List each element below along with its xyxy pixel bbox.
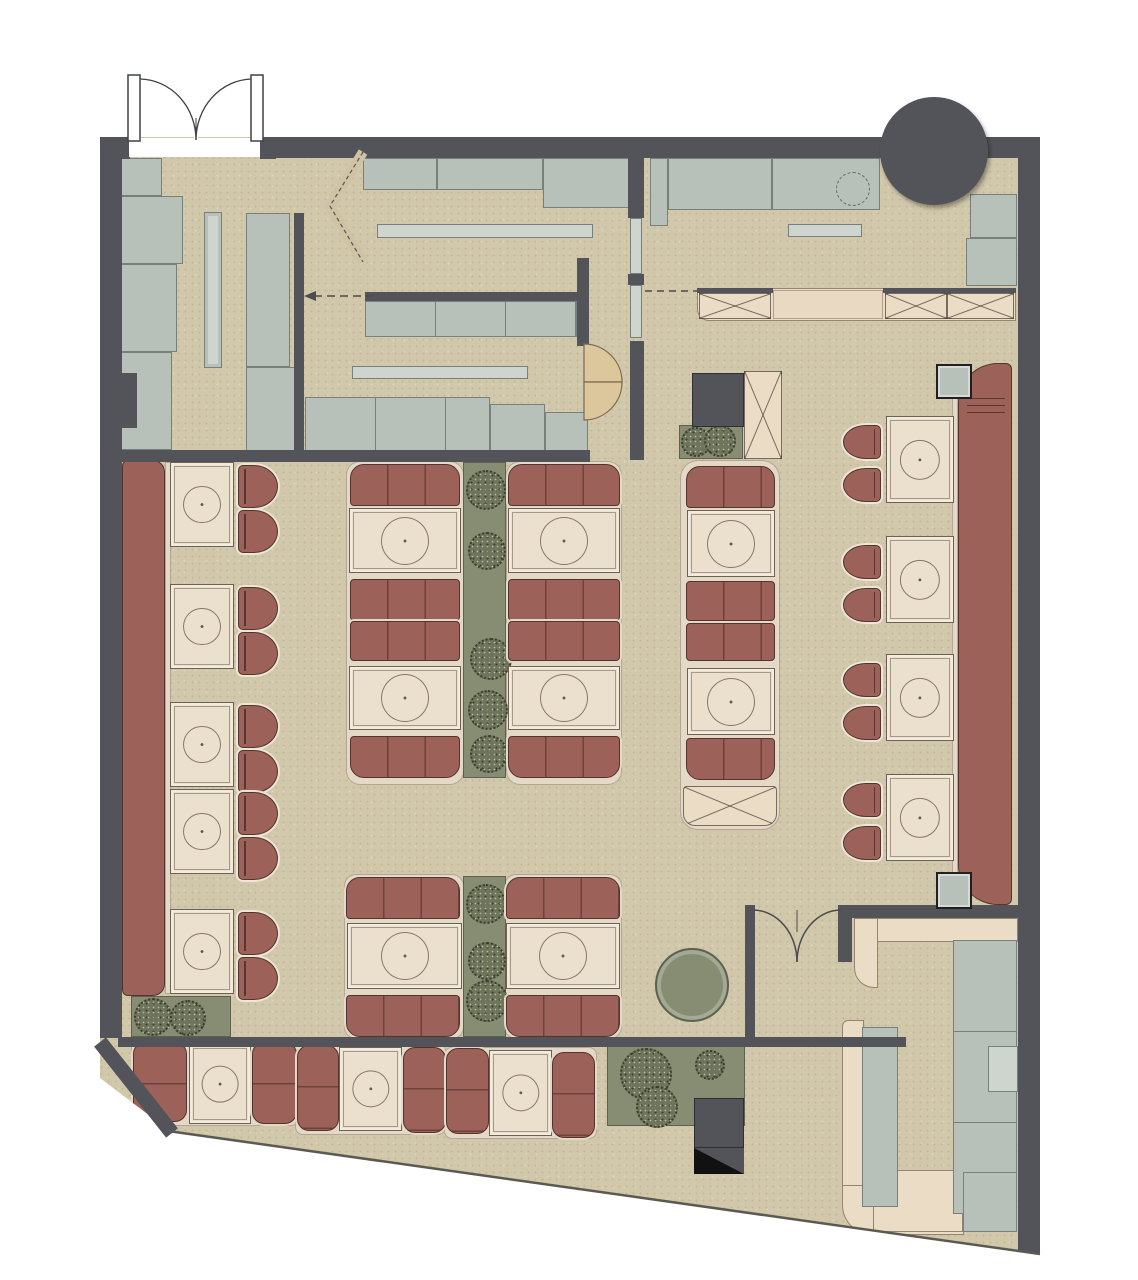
boundary-angled-edge xyxy=(100,1042,1040,1254)
entry-double-door xyxy=(128,75,263,157)
floor-plan-canvas xyxy=(0,0,1138,1280)
plan-overlay-linework xyxy=(0,0,1138,1280)
